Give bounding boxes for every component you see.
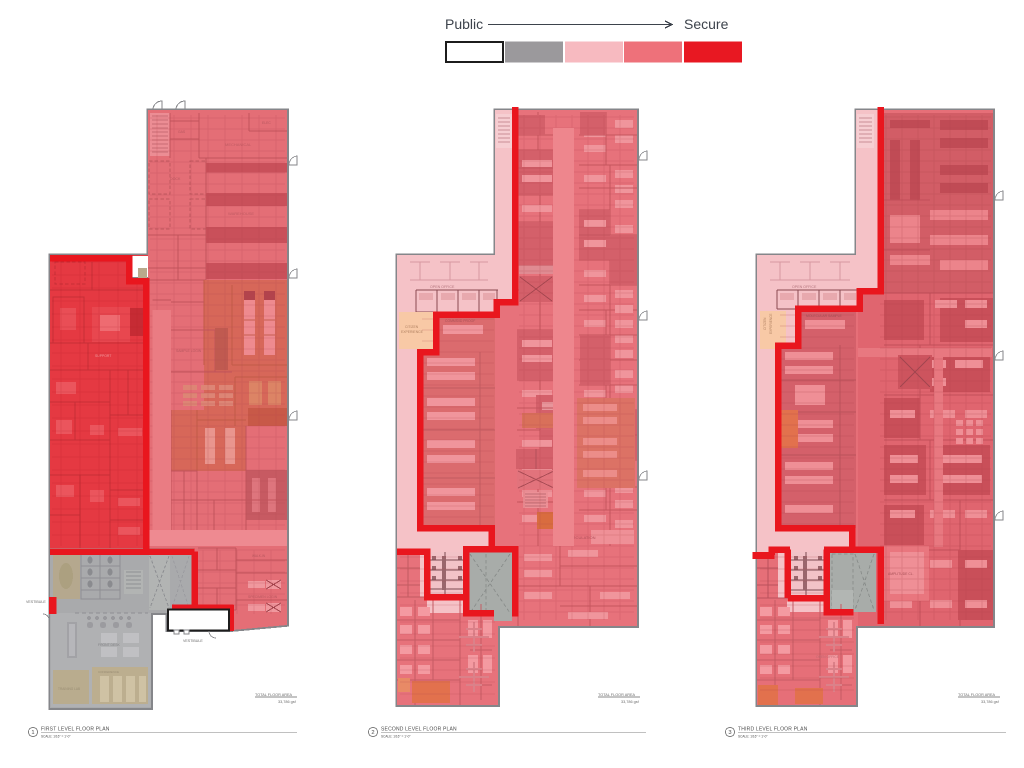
svg-text:CONFERENCE: CONFERENCE <box>98 670 119 674</box>
svg-text:OPEN OFFICE: OPEN OFFICE <box>430 285 455 289</box>
svg-text:TOTAL FLOOR AREA: TOTAL FLOOR AREA <box>958 693 996 697</box>
svg-text:SCALE: 1/16" = 1'-0": SCALE: 1/16" = 1'-0" <box>381 735 411 739</box>
svg-text:SCALE: 1/16" = 1'-0": SCALE: 1/16" = 1'-0" <box>738 735 768 739</box>
svg-text:SAMPLE LOGIN: SAMPLE LOGIN <box>176 349 202 353</box>
svg-text:VESTIBULE: VESTIBULE <box>183 639 203 643</box>
svg-text:AMPLITUDE CL.: AMPLITUDE CL. <box>888 572 914 576</box>
svg-text:OPEN OFFICE: OPEN OFFICE <box>816 655 840 659</box>
svg-text:GAS: GAS <box>178 130 186 134</box>
svg-text:EXPERIENCE: EXPERIENCE <box>769 313 773 334</box>
svg-text:COMMS/ID PROOF: COMMS/ID PROOF <box>445 319 475 323</box>
svg-text:MOLECULAR SAMPLE: MOLECULAR SAMPLE <box>806 314 843 318</box>
svg-text:33,786 gsf: 33,786 gsf <box>621 700 640 704</box>
svg-text:VESTIBULE: VESTIBULE <box>26 600 46 604</box>
svg-text:Secure: Secure <box>684 16 729 32</box>
svg-text:2: 2 <box>371 730 374 736</box>
svg-text:WAREHOUSE: WAREHOUSE <box>228 211 254 216</box>
svg-text:33,786 gsf: 33,786 gsf <box>981 700 1000 704</box>
svg-text:TRAINING LAB: TRAINING LAB <box>58 687 80 691</box>
svg-text:TOTAL FLOOR AREA: TOTAL FLOOR AREA <box>598 693 636 697</box>
svg-text:SPECIMEN LOGIN: SPECIMEN LOGIN <box>248 595 278 599</box>
svg-text:EXPERIENCE: EXPERIENCE <box>401 330 424 334</box>
svg-text:ELEC: ELEC <box>262 121 271 125</box>
svg-text:FRONT DESK: FRONT DESK <box>98 643 121 647</box>
svg-text:SECOND LEVEL FLOOR PLAN: SECOND LEVEL FLOOR PLAN <box>381 727 457 733</box>
svg-text:MECHANICAL: MECHANICAL <box>225 142 252 147</box>
svg-text:Public: Public <box>445 16 483 32</box>
svg-text:DOCK: DOCK <box>170 177 181 181</box>
svg-text:SUPPORT: SUPPORT <box>95 354 111 358</box>
svg-text:SCALE: 1/16" = 1'-0": SCALE: 1/16" = 1'-0" <box>41 735 71 739</box>
svg-text:1: 1 <box>31 730 34 736</box>
svg-text:CITIZEN: CITIZEN <box>763 317 767 330</box>
svg-text:33,786 gsf: 33,786 gsf <box>278 700 297 704</box>
svg-text:TOTAL FLOOR AREA: TOTAL FLOOR AREA <box>255 693 293 697</box>
svg-text:THIRD LEVEL FLOOR PLAN: THIRD LEVEL FLOOR PLAN <box>738 727 808 733</box>
svg-text:CITIZEN: CITIZEN <box>405 325 419 329</box>
svg-text:3: 3 <box>728 730 731 736</box>
svg-text:FIRST LEVEL FLOOR PLAN: FIRST LEVEL FLOOR PLAN <box>41 727 110 733</box>
svg-text:OPEN OFFICE: OPEN OFFICE <box>792 285 817 289</box>
